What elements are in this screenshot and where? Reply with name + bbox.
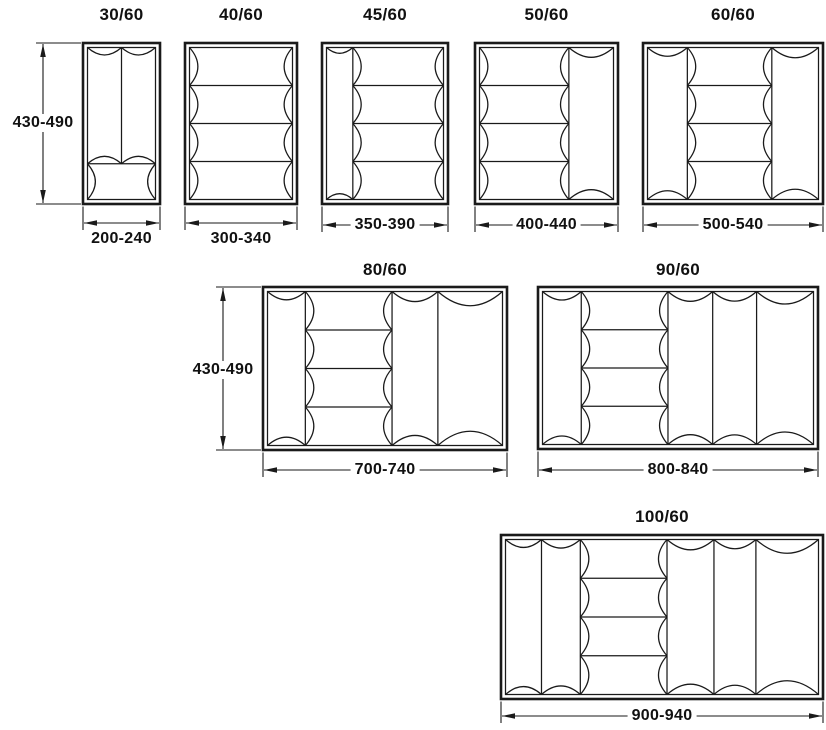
height-dimension-2 <box>216 287 261 450</box>
cutlery-insert-size-diagram: 200-24030/60300-34040/60350-39045/60400-… <box>0 0 826 730</box>
width-dimension-800-840 <box>538 452 818 478</box>
tray-80-60 <box>263 287 507 450</box>
width-dimension-200-240 <box>83 207 160 231</box>
width-dimension-350-390 <box>322 207 448 233</box>
height-dimension-1 <box>36 43 81 204</box>
tray-40-60 <box>185 43 297 204</box>
width-dimension-300-340 <box>185 207 297 231</box>
tray-90-60 <box>538 287 818 449</box>
diagram-canvas <box>0 0 826 730</box>
width-dimension-500-540 <box>643 207 823 233</box>
width-dimension-400-440 <box>475 207 618 233</box>
tray-60-60 <box>643 43 823 204</box>
tray-100-60 <box>501 535 823 699</box>
width-dimension-900-940 <box>501 702 823 724</box>
tray-50-60 <box>475 43 618 204</box>
tray-30-60 <box>83 43 160 204</box>
tray-45-60 <box>322 43 448 204</box>
width-dimension-700-740 <box>263 453 507 478</box>
